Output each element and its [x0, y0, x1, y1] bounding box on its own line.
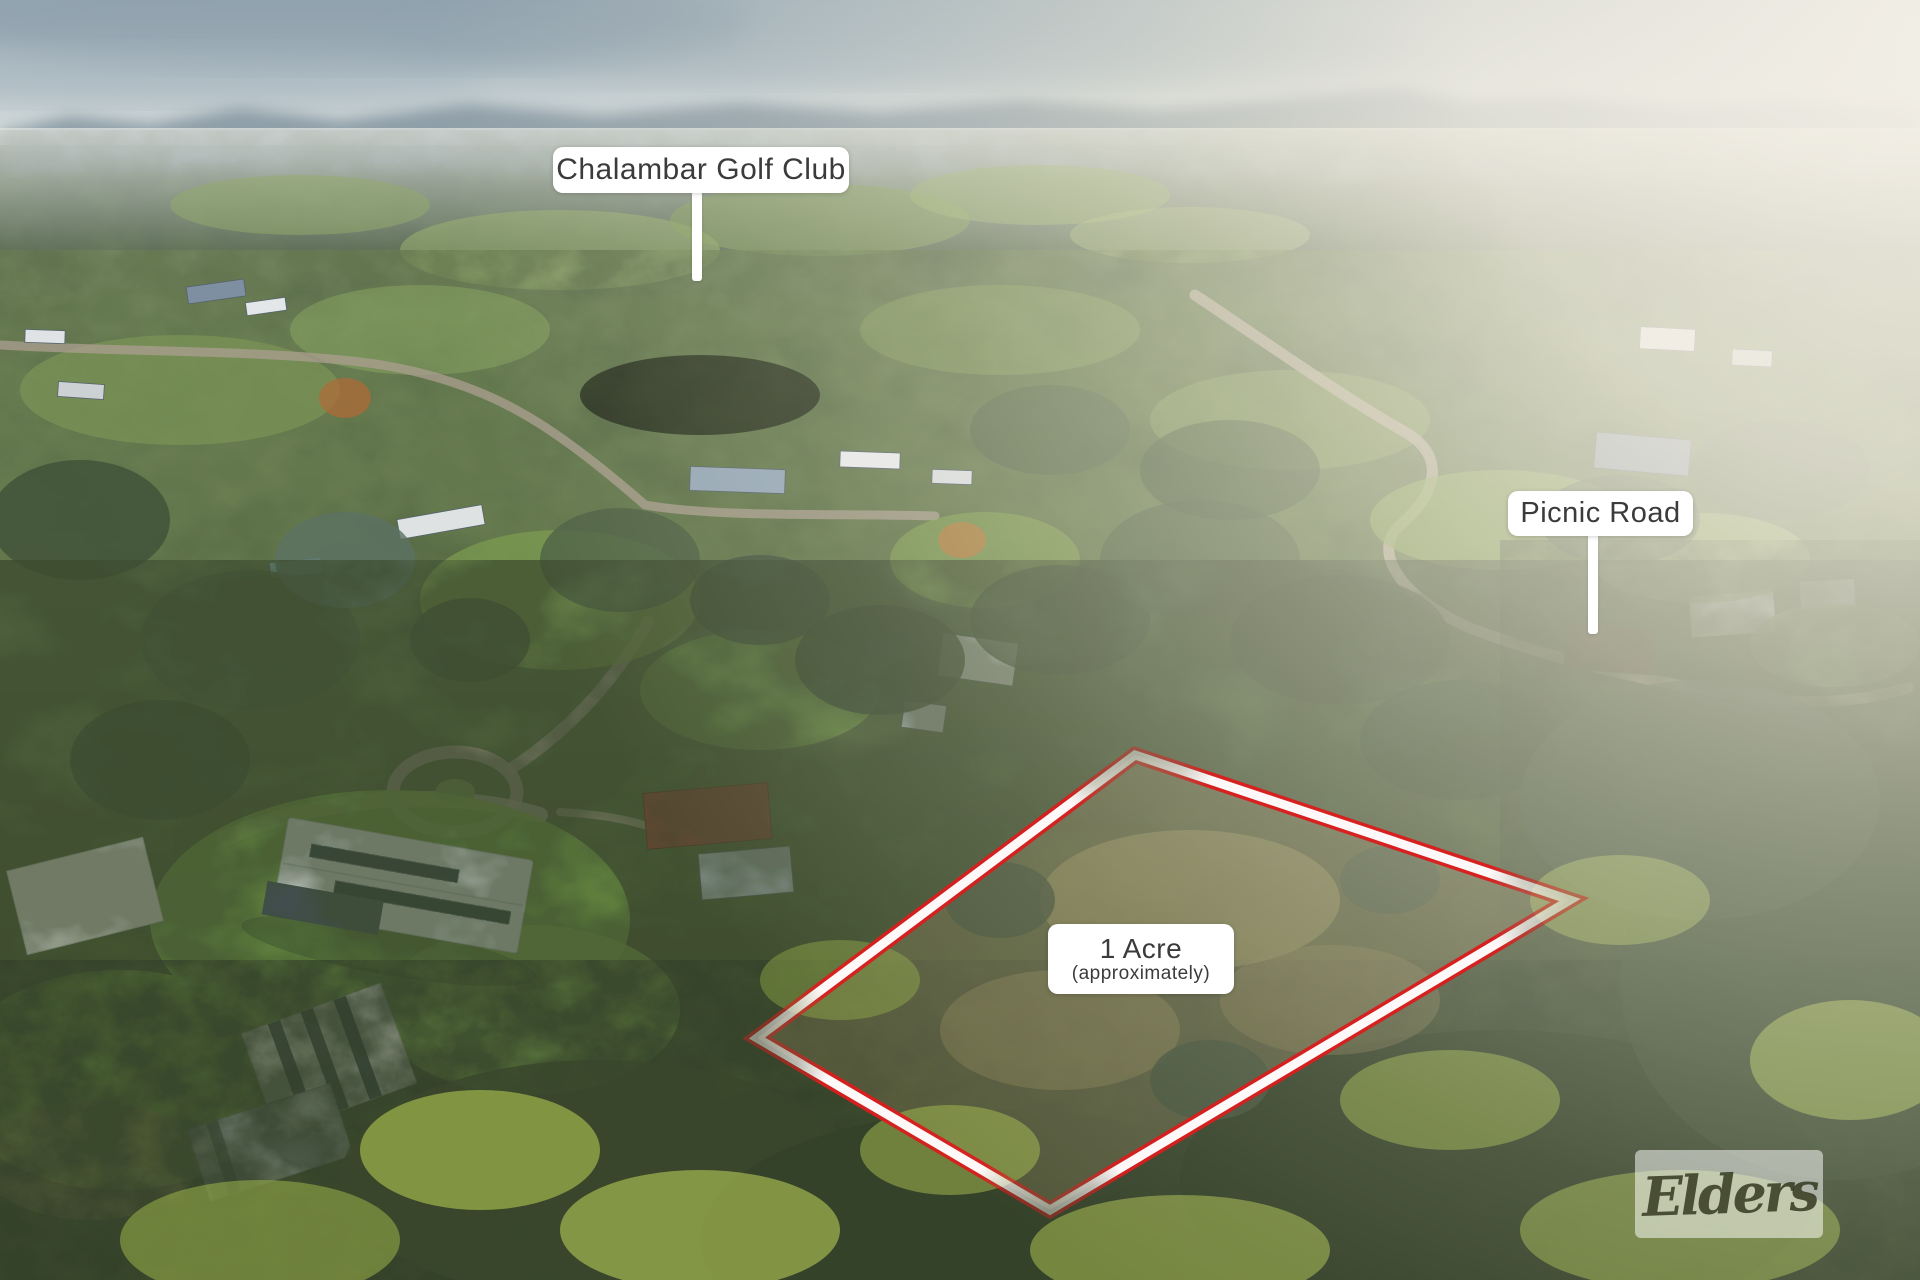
picnic-road-label: Picnic Road	[1508, 491, 1693, 536]
picnic-road-label-text: Picnic Road	[1520, 497, 1680, 530]
aerial-photo-page: Chalambar Golf Club Picnic Road 1 Acre (…	[0, 0, 1920, 1280]
sun-glare	[0, 0, 1920, 1280]
area-label: 1 Acre (approximately)	[1048, 924, 1234, 994]
golf-club-label: Chalambar Golf Club	[553, 147, 849, 193]
area-label-secondary: (approximately)	[1072, 964, 1210, 985]
elders-logo-watermark: Elders	[1635, 1150, 1823, 1238]
golf-club-pointer-line	[692, 191, 702, 281]
elders-logo-text: Elders	[1641, 1159, 1818, 1229]
area-label-primary: 1 Acre	[1100, 934, 1182, 964]
golf-club-label-text: Chalambar Golf Club	[556, 153, 846, 187]
aerial-photo	[0, 0, 1920, 1280]
picnic-road-pointer-line	[1588, 534, 1598, 634]
